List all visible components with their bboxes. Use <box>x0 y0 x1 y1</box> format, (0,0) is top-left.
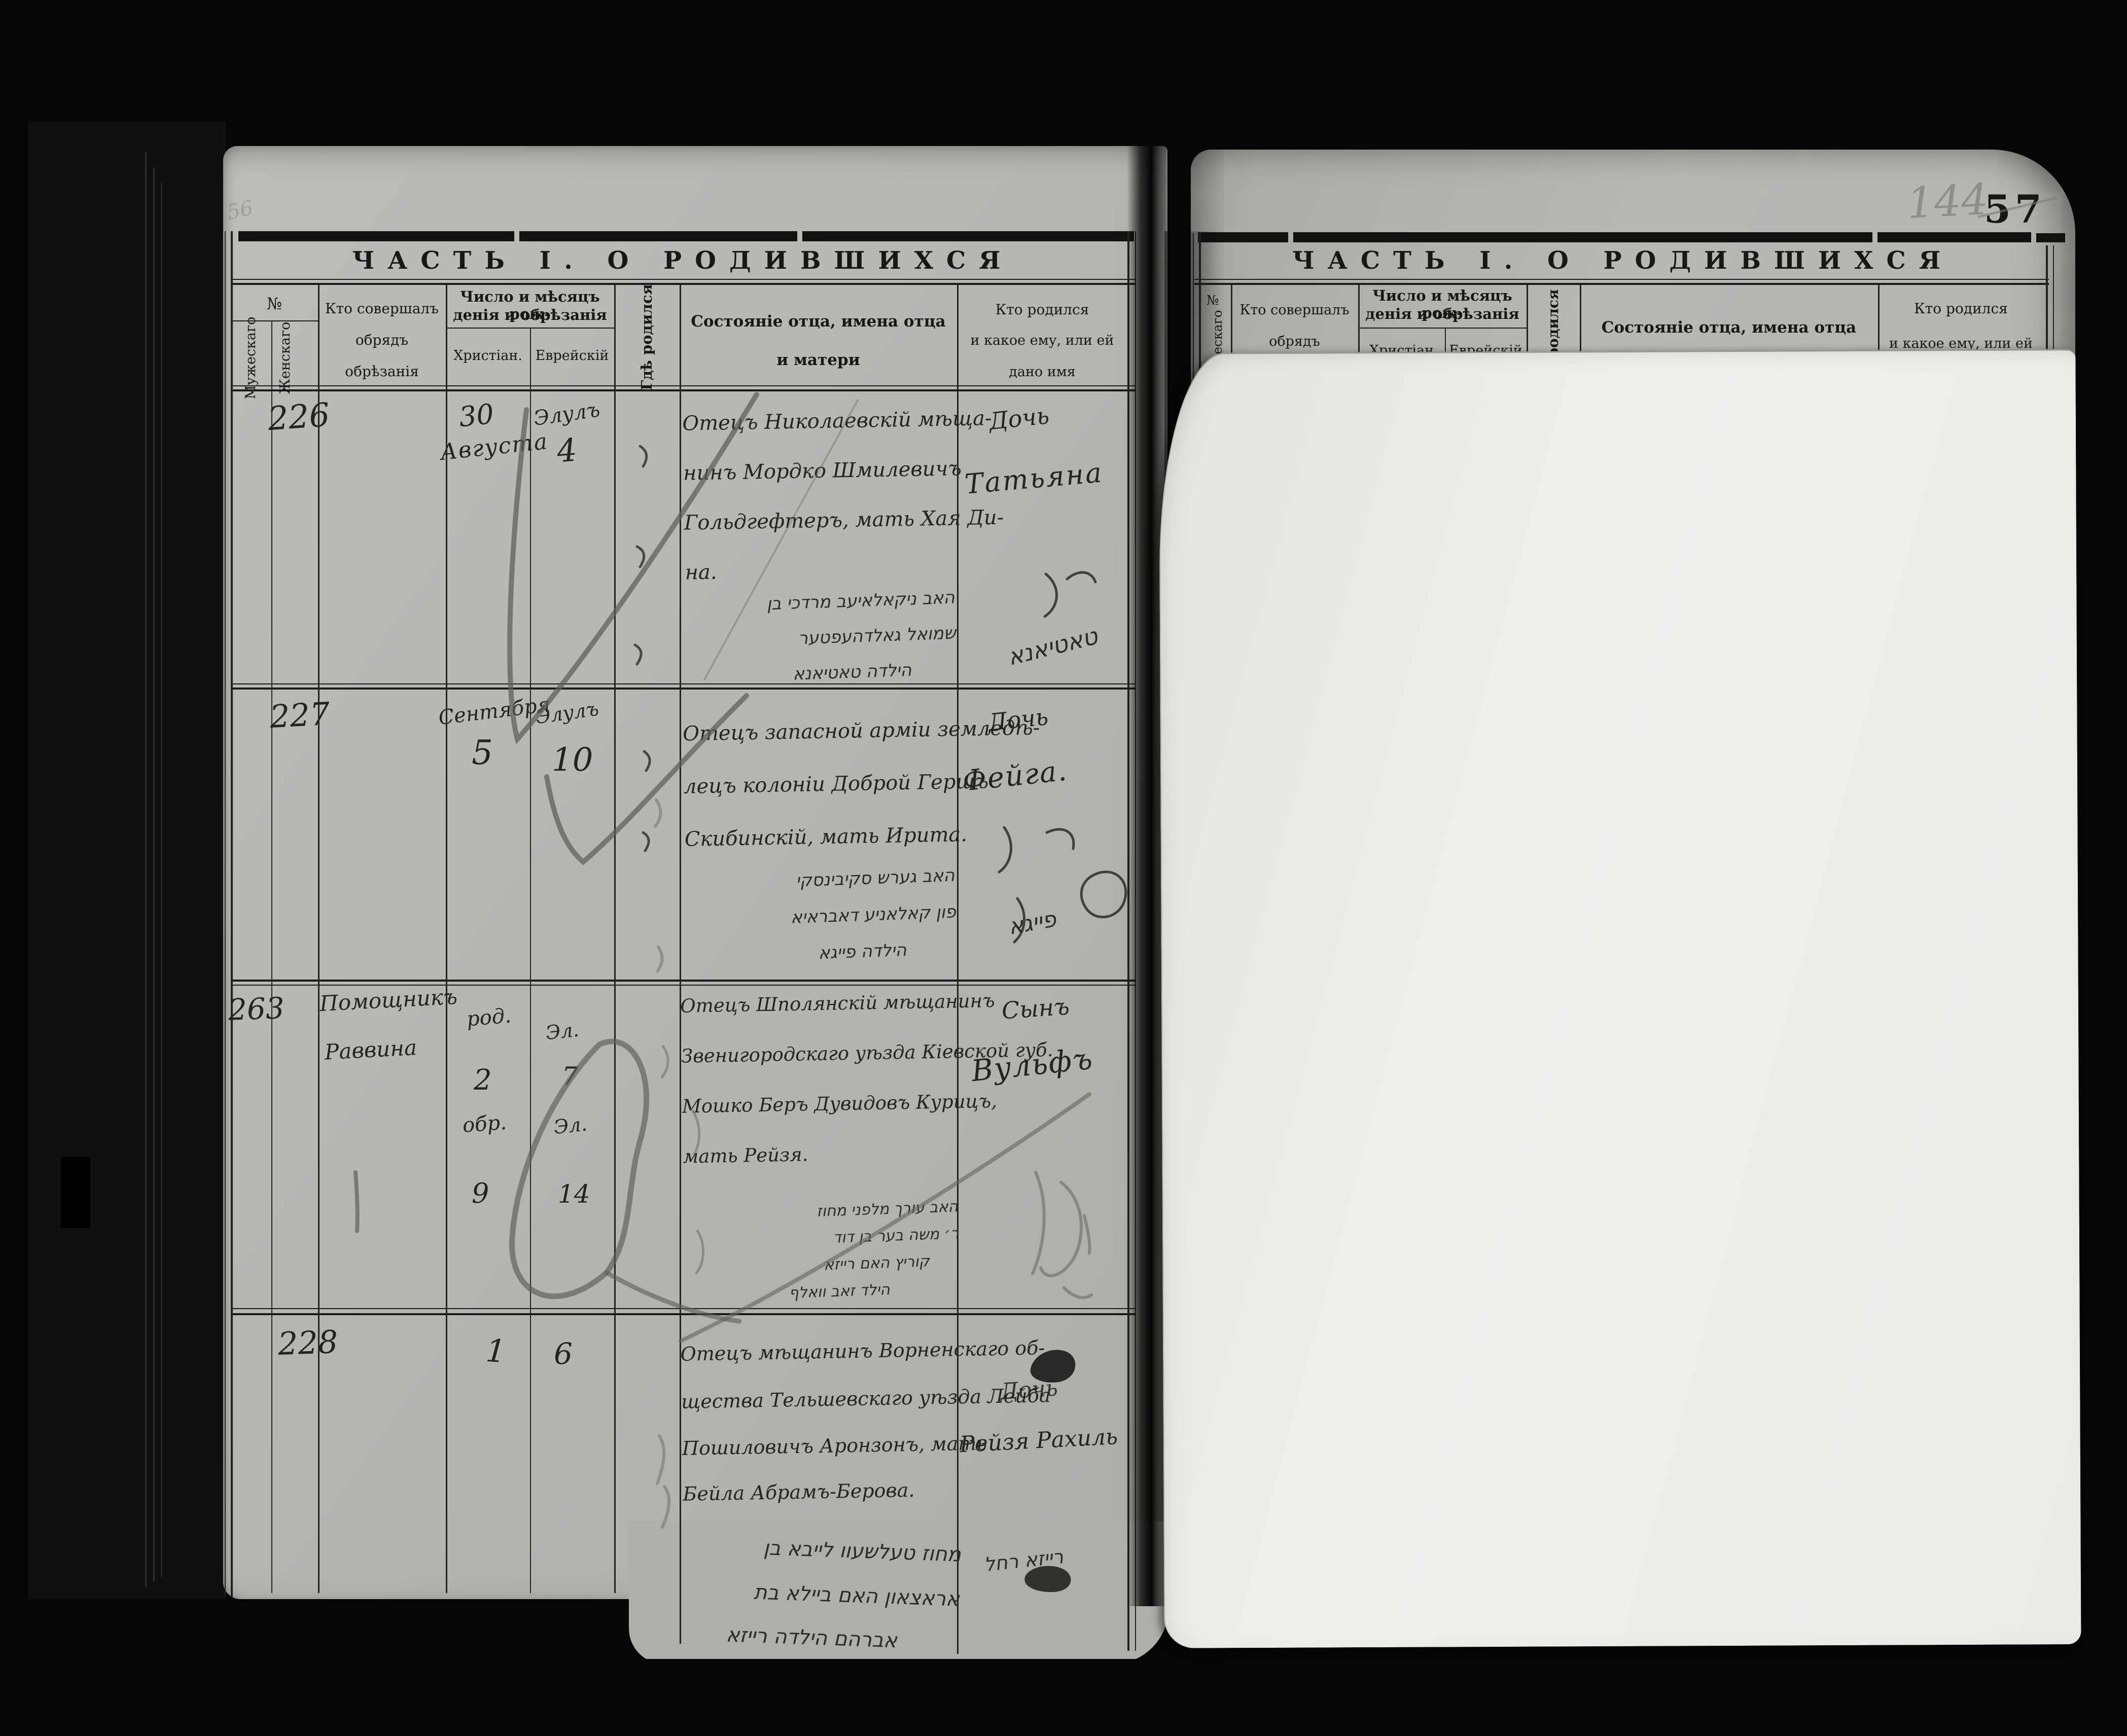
top-rule <box>2036 233 2065 242</box>
entry-born-label: род. <box>466 1004 512 1031</box>
col-male-header: Мужескаго <box>242 310 259 406</box>
entry-father-text: Отецъ мѣщанинъ Ворненскаго об- щества Те… <box>680 1338 962 1505</box>
hebrew-line: אראצאון האם ביילא בת <box>710 1579 960 1611</box>
entry-number: 263 <box>228 991 285 1027</box>
entry-hebrew-note: האב גערש סקיבינסקי פון קאלאניע דאבראיא ה… <box>681 865 958 968</box>
entry-jewish-circ-day: 14 <box>558 1179 590 1209</box>
column-line <box>318 285 320 1593</box>
column-line <box>271 320 272 1593</box>
entry-number: 227 <box>269 695 331 735</box>
entry-number: 226 <box>267 396 331 438</box>
page-stack-edge <box>145 152 147 1587</box>
row-separator <box>231 688 1135 690</box>
entry-father-text: Отецъ Шполянскій мѣщанинъ Звенигородскаг… <box>680 990 962 1168</box>
border <box>225 231 226 1597</box>
entry-hebrew-note: האב ניקאלאיעב מרדכי בן שמואל גאלדהעפטער … <box>681 588 958 689</box>
father-line: Мошко Беръ Дувидовъ Курицъ, <box>682 1091 962 1117</box>
left-page-title: ЧАСТЬ I. О РОДИВШИХСЯ <box>231 246 1135 275</box>
bottom-edge-black <box>0 1599 629 1736</box>
entry-hebrew-note: האב עורך מלפני מחוז ר׳ משה בער בן דוד קו… <box>678 1198 961 1306</box>
entry-jewish-circ-label: Эл. <box>553 1113 588 1139</box>
father-line: щества Тельшевскаго уѣзда Лейба <box>681 1386 961 1413</box>
top-rule <box>1293 232 1872 242</box>
top-rule <box>519 231 797 241</box>
entry-father-text: Отецъ Николаевскій мѣща- нинъ Мордко Шми… <box>682 407 956 584</box>
scanned-register-spread: 144 57 56 ЧАСТЬ I. О РОДИВШИХСЯ № Мужеск… <box>0 0 2127 1736</box>
col-officiant-header: Кто совершалъ <box>318 300 446 317</box>
hebrew-line: ר׳ משה בער בן דוד <box>720 1224 960 1250</box>
edge-tab-mark <box>60 1156 91 1229</box>
rule <box>231 389 1135 391</box>
col-dates-header: денія и обрѣзанія <box>1358 305 1527 322</box>
column-line <box>446 285 447 1593</box>
entry-christian-day: 5 <box>472 733 493 772</box>
entry-child-sex: Сынъ <box>1001 992 1070 1024</box>
border <box>231 231 233 1597</box>
entry-circ-day: 9 <box>472 1177 489 1209</box>
row-separator <box>231 1308 1135 1309</box>
father-line: Скибинскій, мать Ирита. <box>684 823 956 851</box>
book-edge-margin <box>28 122 226 1627</box>
bottom-edge-black <box>629 1659 1191 1736</box>
col-officiant-header: Кто совершалъ <box>1231 302 1358 318</box>
hebrew-line: קוריץ האם רייזא <box>680 1252 930 1279</box>
entry-officiant: Раввина <box>324 1035 417 1064</box>
col-father-header: Состояніе отца, имена отца <box>680 312 957 331</box>
col-officiant-header: обрядъ <box>318 332 446 348</box>
hebrew-line: פון קאלאניע דאבראיא <box>717 902 956 930</box>
father-line: Отецъ мѣщанинъ Ворненскаго об- <box>680 1338 960 1365</box>
entry-number: 228 <box>277 1323 339 1362</box>
border <box>2046 245 2048 357</box>
entry-jewish-born-day: 7 <box>562 1062 578 1091</box>
father-line: Отецъ Шполянскій мѣщанинъ <box>680 990 960 1017</box>
col-father-header: Состояніе отца, имена отца <box>1580 318 1878 337</box>
cover-sheet <box>1158 349 2081 1648</box>
col-father-header: и матери <box>680 351 957 369</box>
rule <box>1194 283 2049 285</box>
entry-christian-day: 1 <box>485 1332 507 1370</box>
column-line <box>614 285 616 1593</box>
rule <box>231 385 1135 386</box>
row-separator <box>231 980 1135 982</box>
page-stack-edge <box>153 167 155 1582</box>
father-line: Отецъ запасной арміи земледѣ- <box>683 717 954 745</box>
top-rule <box>802 231 1134 241</box>
father-line: Звенигородскаго уѣзда Кіевской губ. <box>681 1040 961 1067</box>
col-whereborn-header: Гдѣ родился <box>638 281 655 393</box>
column-line <box>680 285 681 1644</box>
top-rule <box>238 231 514 241</box>
folio-printed-number: 57 <box>1984 187 2046 232</box>
father-line: Пошиловичъ Аронзонъ, мать <box>682 1432 961 1460</box>
border <box>2053 245 2054 357</box>
entry-circ-label: обр. <box>462 1111 508 1137</box>
col-officiant-header: обрядъ <box>1231 334 1358 349</box>
entry-jewish-day: 4 <box>555 431 579 469</box>
col-female-header: Женскаго <box>277 310 293 406</box>
father-line: на. <box>685 556 956 584</box>
rule <box>1194 279 2049 280</box>
entry-christian-day: 30 <box>457 398 495 433</box>
entry-born-day: 2 <box>474 1064 492 1097</box>
rule <box>1358 328 1527 329</box>
col-officiant-header: обрѣзанія <box>318 363 446 380</box>
col-jewish-header: Еврейскій <box>530 348 614 364</box>
father-line: Отецъ Николаевскій мѣща- <box>682 407 954 435</box>
col-whereborn-label: родился <box>1545 289 1562 357</box>
entry-jewish-day: 10 <box>552 741 593 779</box>
top-rule <box>1877 232 2031 242</box>
col-male-label: Мужескаго <box>243 317 259 400</box>
folio-penciled-number: 144 <box>1906 174 1990 228</box>
row-separator <box>231 985 1135 986</box>
father-line: лецъ колоніи Доброй Гершъ <box>684 770 955 798</box>
rule <box>231 283 1135 285</box>
col-female-label: Женскаго <box>277 322 293 394</box>
column-line <box>530 329 531 1593</box>
col-whoborn-header: Кто родился <box>957 301 1127 318</box>
entry-jewish-day: 6 <box>554 1336 573 1371</box>
entry-father-text: Отецъ запасной арміи земледѣ- лецъ колон… <box>683 717 956 851</box>
right-page-title: ЧАСТЬ I. О РОДИВШИХСЯ <box>1197 246 2049 275</box>
col-whereborn-label: Гдѣ родился <box>638 284 655 390</box>
father-line: нинъ Мордко Шмилевичъ <box>683 457 955 485</box>
hebrew-line: שמואל גאלדהעפטער <box>712 623 956 652</box>
row-separator <box>231 1313 1135 1315</box>
father-line: Гольдгефтеръ, мать Хая Ди- <box>684 507 955 534</box>
col-whoborn-header: и какое ему, или ей <box>957 333 1127 348</box>
rule <box>231 279 1135 280</box>
entry-hebrew-note: מחוז טעלשעוו לייבא בן אראצאון האם ביילא … <box>678 1533 961 1654</box>
col-whoborn-header: дано имя <box>957 364 1127 380</box>
col-whoborn-header: Кто родился <box>1878 300 2044 317</box>
row-separator <box>231 683 1135 684</box>
col-dates-header: денія и обрѣзанія <box>446 306 614 323</box>
entry-child-sex: Дочь <box>999 1375 1058 1405</box>
col-christian-header: Христіан. <box>446 348 530 364</box>
entry-jewish-born-label: Эл. <box>545 1019 580 1044</box>
page-stack-edge <box>161 183 162 1577</box>
